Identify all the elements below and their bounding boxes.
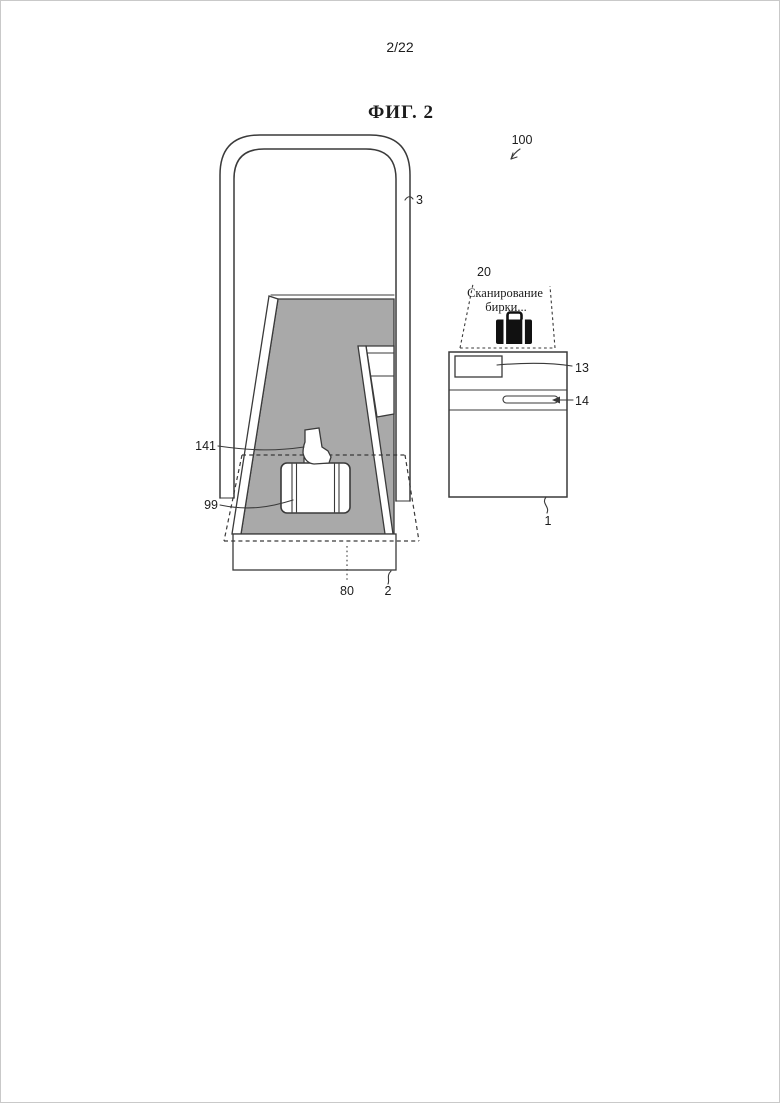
label-display: 13	[575, 361, 589, 375]
label-tag: 141	[195, 439, 216, 453]
figure-title: ФИГ. 2	[368, 102, 434, 123]
suitcase-body	[281, 463, 350, 513]
label-slot: 14	[575, 394, 589, 408]
leader-line-1	[544, 497, 547, 513]
label-system: 100	[512, 133, 533, 147]
system-reference: 100	[511, 133, 532, 159]
baggage-cart: 141 99 3 80 2	[195, 135, 423, 598]
suitcase-icon	[496, 313, 532, 345]
label-handle-frame: 3	[416, 193, 423, 207]
label-device-body: 1	[545, 514, 552, 528]
arrow-100	[511, 149, 520, 159]
patent-page: 2/22 ФИГ. 2	[0, 0, 780, 1103]
label-baggage: 99	[204, 498, 218, 512]
leader-line-2	[388, 571, 391, 584]
scan-caption-line1: Сканирование	[467, 286, 543, 300]
label-base: 2	[385, 584, 392, 598]
ticket-slot	[503, 396, 558, 403]
page-number: 2/22	[386, 39, 413, 55]
device-display	[455, 356, 502, 377]
scanner-device: 20 Сканирование бирки... 13 14 1	[449, 265, 589, 528]
base-platform	[233, 534, 396, 570]
label-scan-area: 20	[477, 265, 491, 279]
label-scan-region: 80	[340, 584, 354, 598]
figure-canvas: 2/22 ФИГ. 2	[1, 1, 780, 1103]
leader-line-3	[405, 197, 413, 200]
